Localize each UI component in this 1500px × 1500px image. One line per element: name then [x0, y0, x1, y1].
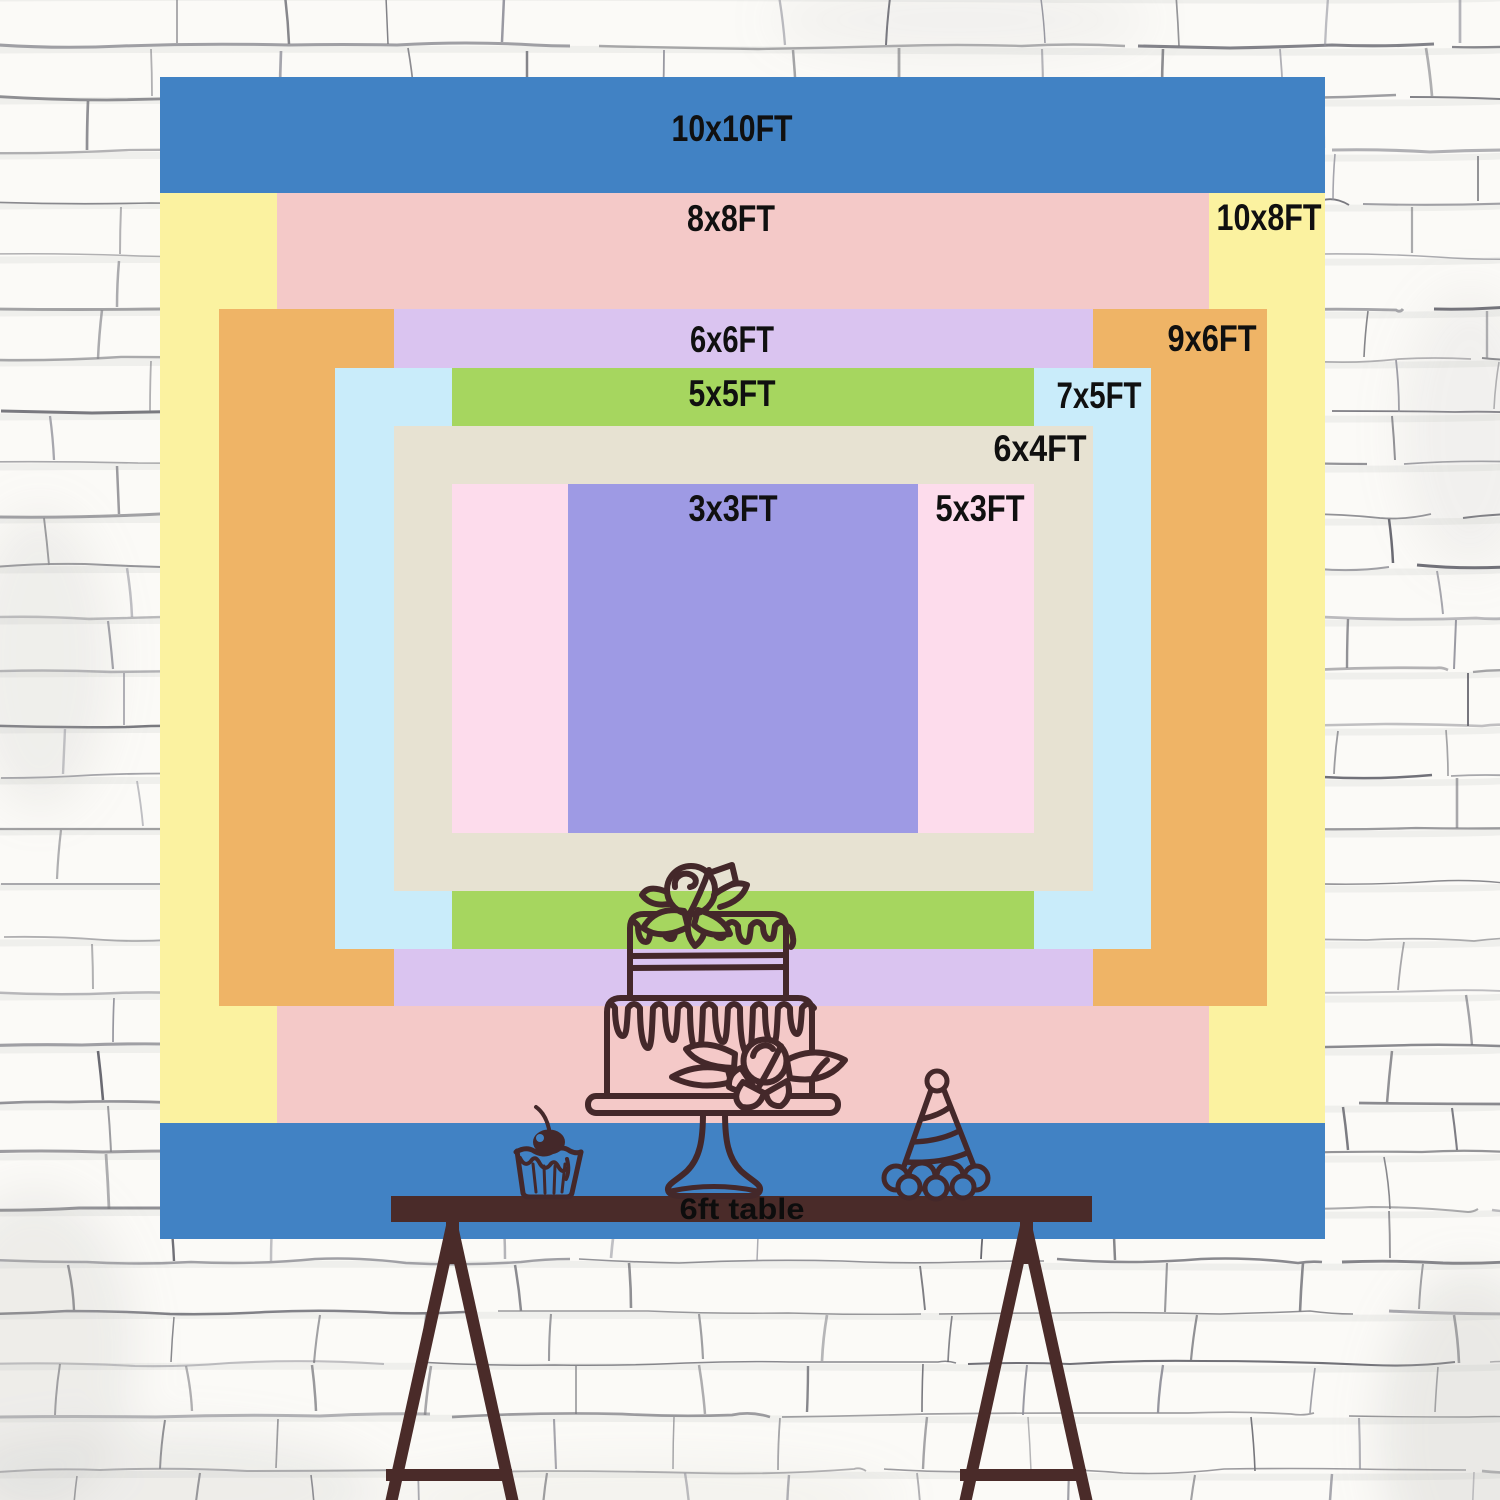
svg-text:8x8FT: 8x8FT — [687, 198, 775, 239]
svg-text:5x5FT: 5x5FT — [689, 373, 776, 414]
svg-text:5x3FT: 5x3FT — [936, 488, 1025, 529]
svg-text:10x10FT: 10x10FT — [672, 108, 793, 149]
svg-text:6x6FT: 6x6FT — [690, 319, 774, 360]
svg-text:6ft table: 6ft table — [680, 1193, 805, 1226]
svg-text:10x8FT: 10x8FT — [1217, 197, 1322, 238]
svg-text:3x3FT: 3x3FT — [689, 488, 778, 529]
svg-text:7x5FT: 7x5FT — [1057, 375, 1142, 416]
svg-text:6x4FT: 6x4FT — [994, 428, 1087, 469]
svg-text:9x6FT: 9x6FT — [1168, 318, 1257, 359]
